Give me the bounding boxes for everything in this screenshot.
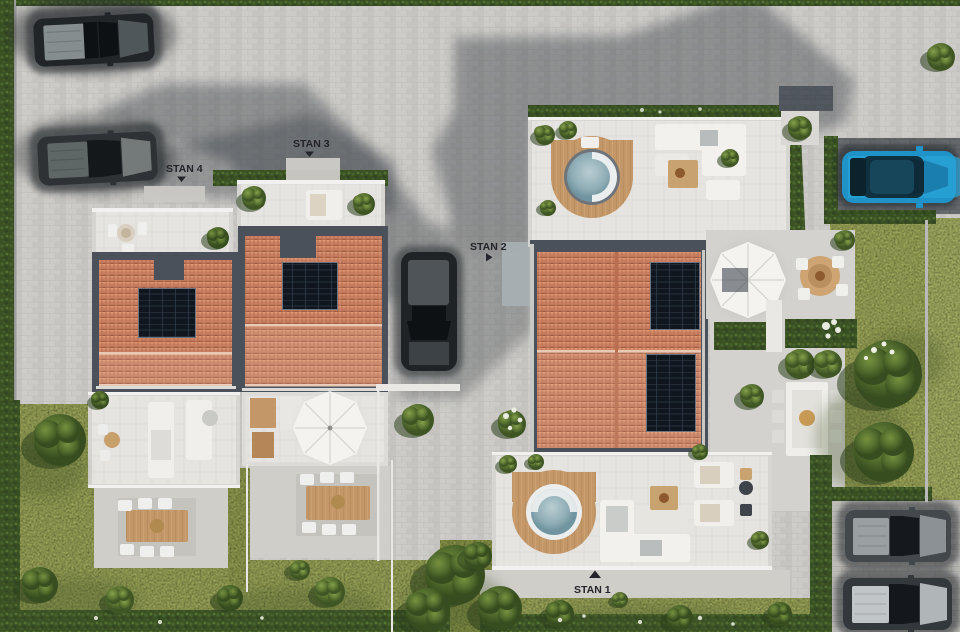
svg-text:STAN 2: STAN 2 — [470, 241, 507, 253]
svg-text:STAN 1: STAN 1 — [574, 584, 611, 596]
svg-text:STAN 4: STAN 4 — [166, 163, 203, 175]
svg-text:STAN 3: STAN 3 — [293, 138, 330, 150]
